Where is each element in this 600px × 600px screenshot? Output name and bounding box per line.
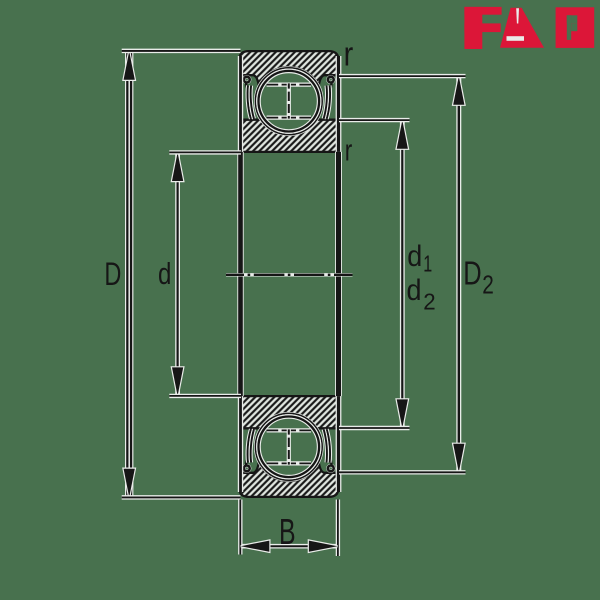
svg-text:1: 1 [423, 251, 432, 277]
svg-text:r: r [344, 35, 354, 73]
svg-text:D: D [463, 254, 481, 291]
svg-text:d: d [158, 256, 171, 291]
svg-text:2: 2 [423, 288, 435, 314]
svg-text:d: d [407, 240, 422, 273]
svg-text:B: B [279, 511, 296, 552]
svg-text:r: r [345, 132, 353, 167]
svg-text:D: D [104, 256, 121, 292]
svg-text:2: 2 [482, 271, 494, 299]
svg-text:d: d [407, 274, 422, 307]
